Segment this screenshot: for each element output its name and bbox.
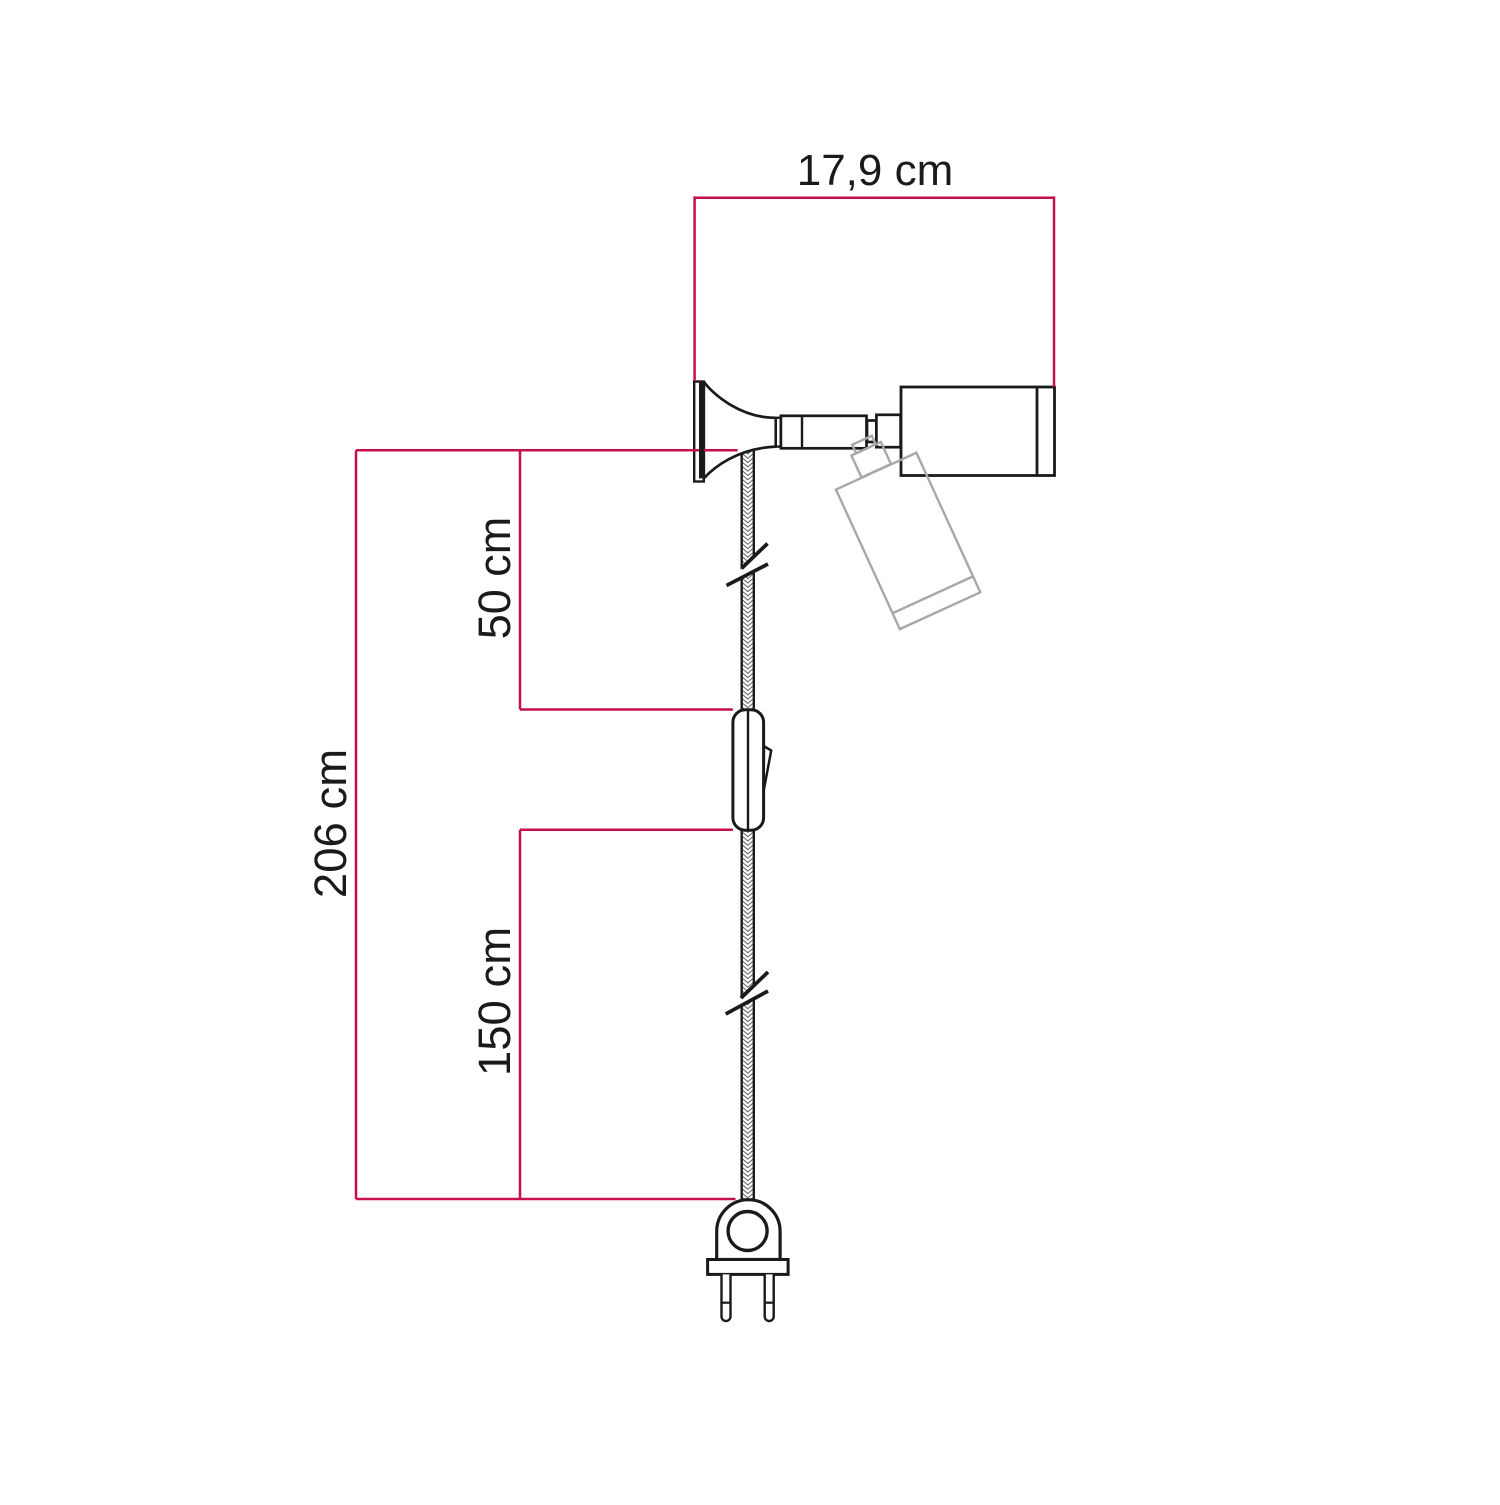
svg-text:17,9 cm: 17,9 cm [797,146,954,195]
svg-text:206 cm: 206 cm [305,749,356,898]
svg-text:150 cm: 150 cm [469,927,520,1076]
svg-text:50 cm: 50 cm [469,517,520,640]
